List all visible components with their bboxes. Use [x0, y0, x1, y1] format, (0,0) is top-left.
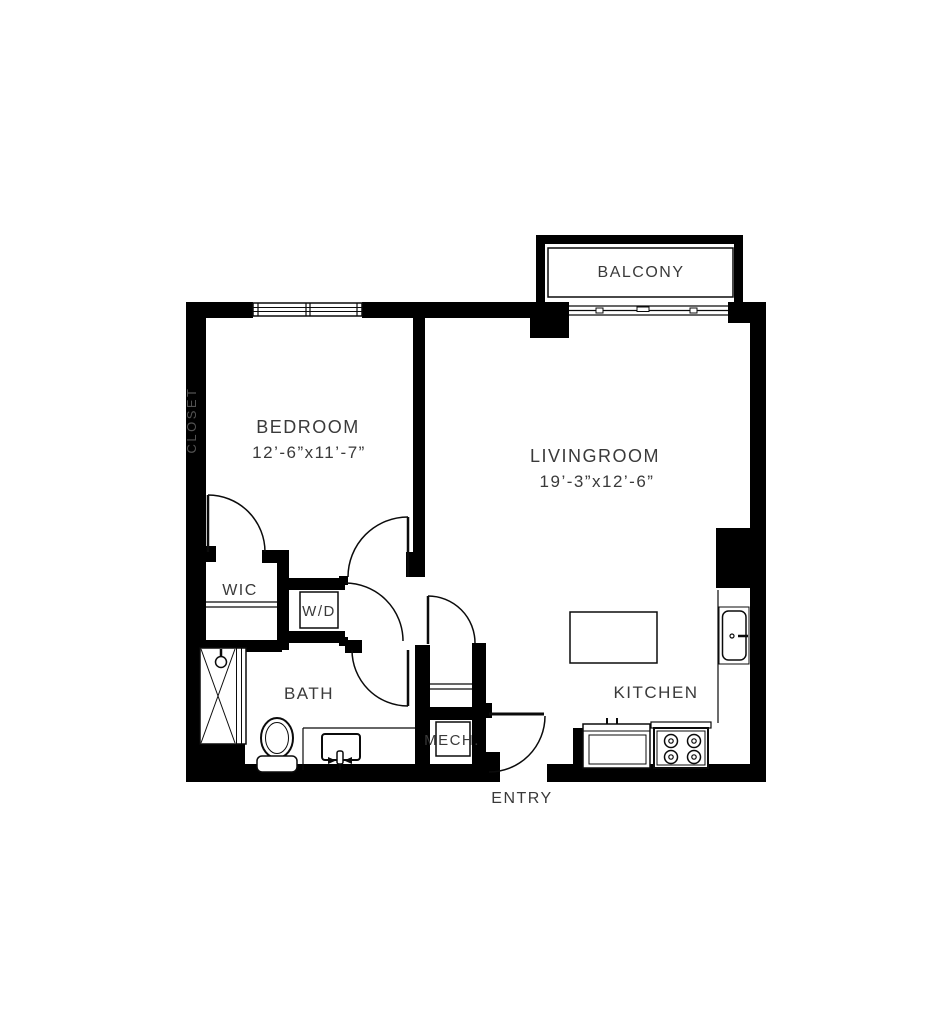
- wall-bedroom-living-divider: [413, 318, 425, 552]
- bedroom-window: [253, 303, 362, 316]
- window-frame: [253, 303, 362, 316]
- stove-body: [654, 728, 708, 768]
- toilet-icon: [257, 718, 297, 772]
- stove-burner-center: [669, 739, 673, 743]
- wd-wall-top: [283, 578, 345, 590]
- wall-top-middle: [362, 302, 530, 318]
- shower-icon: [200, 648, 246, 744]
- balcony-wall-right: [734, 235, 743, 302]
- balcony: BALCONY: [536, 235, 743, 302]
- wall-column-livingroom: [716, 528, 750, 588]
- counter-sink-basin: [589, 735, 646, 764]
- wall-sink-drain: [730, 634, 734, 638]
- wic-label: WIC: [222, 582, 258, 599]
- entry-hinge-block: [472, 703, 492, 718]
- stove-burner-center: [692, 755, 696, 759]
- slider-handle: [596, 308, 603, 313]
- kitchen-wall-sink-icon: [719, 607, 749, 664]
- laundry-closet: W/D: [283, 576, 403, 646]
- wic-door-arc: [208, 495, 265, 552]
- bedroom-door-arc: [348, 517, 408, 577]
- bath-door-arc: [352, 650, 408, 706]
- bedroom-dimensions: 12’-6”x11’-7”: [252, 443, 366, 462]
- floorplan-drawing: BALCONY CLOSET: [0, 0, 927, 1024]
- stove-icon: [651, 722, 711, 768]
- balcony-wall-top: [536, 235, 743, 244]
- shower-head: [216, 657, 227, 668]
- slider-handle: [690, 308, 697, 313]
- bedroom: BEDROOM 12’-6”x11’-7”: [252, 318, 425, 577]
- stove-burner-center: [692, 739, 696, 743]
- livingroom-label: LIVINGROOM: [530, 446, 660, 466]
- balcony-label: BALCONY: [598, 264, 685, 281]
- slider-handle: [637, 307, 649, 312]
- wd-label: W/D: [302, 603, 336, 620]
- bath-label: BATH: [284, 684, 334, 703]
- vanity-faucet: [337, 751, 343, 764]
- kitchen-label: KITCHEN: [613, 683, 698, 702]
- wic: WIC: [203, 495, 289, 650]
- wall-bottom-left: [186, 764, 500, 782]
- wall-kitchen-stub: [573, 728, 583, 766]
- kitchen: KITCHEN: [570, 590, 749, 768]
- hall-closet-door-arc: [428, 596, 475, 643]
- livingroom: LIVINGROOM 19’-3”x12’-6”: [530, 446, 660, 491]
- entry-label: ENTRY: [491, 790, 552, 807]
- stove-burner-center: [669, 755, 673, 759]
- balcony-sliding-door: [569, 306, 728, 315]
- wall-right: [750, 303, 766, 782]
- wd-door-arc: [345, 583, 403, 641]
- wd-wall-bottom: [283, 631, 345, 643]
- wic-wall-jamb-left: [203, 546, 216, 562]
- mech-label: MECH.: [424, 732, 480, 749]
- closet-wall-label: CLOSET: [184, 386, 199, 453]
- vanity-sink-icon: [303, 728, 425, 770]
- bath-wall-jamb: [345, 640, 362, 653]
- kitchen-island: [570, 612, 657, 663]
- floorplan-page: BALCONY CLOSET: [0, 0, 927, 1024]
- bedroom-label: BEDROOM: [256, 417, 360, 437]
- kitchen-counter-sink-icon: [583, 718, 650, 768]
- balcony-wall-left: [536, 235, 545, 302]
- livingroom-dimensions: 19’-3”x12’-6”: [540, 472, 655, 491]
- toilet-bowl-inner: [266, 723, 289, 754]
- toilet-tank: [257, 756, 297, 772]
- mech-and-hall-closet: MECH.: [415, 596, 486, 773]
- wall-column-balcony-left: [530, 302, 569, 338]
